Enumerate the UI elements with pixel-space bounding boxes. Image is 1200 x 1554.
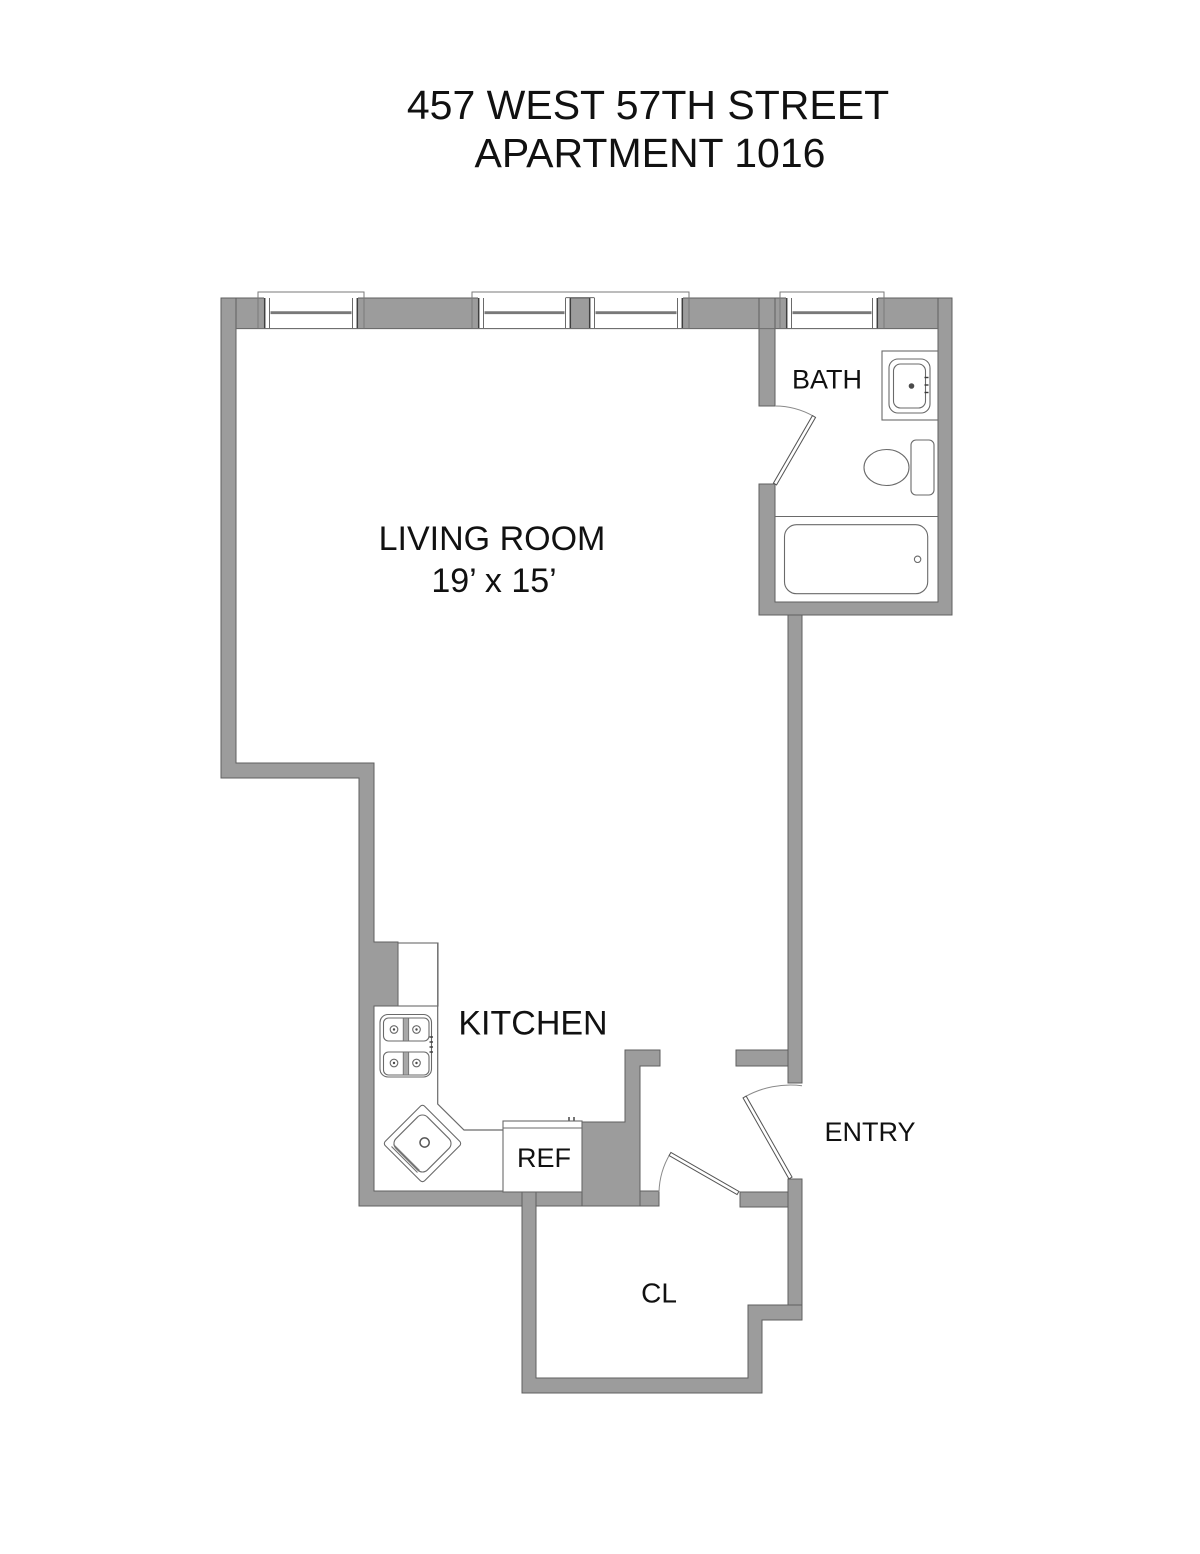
svg-text:LIVING ROOM: LIVING ROOM (379, 520, 606, 558)
svg-text:APARTMENT 1016: APARTMENT 1016 (475, 130, 826, 176)
svg-text:REF: REF (517, 1143, 571, 1173)
svg-text:ENTRY: ENTRY (824, 1117, 915, 1147)
svg-text:BATH: BATH (792, 365, 862, 395)
svg-text:CL: CL (641, 1278, 677, 1309)
svg-text:KITCHEN: KITCHEN (458, 1005, 607, 1043)
svg-text:457 WEST 57TH STREET: 457 WEST 57TH STREET (407, 82, 889, 128)
svg-text:19’ x 15’: 19’ x 15’ (431, 562, 556, 600)
